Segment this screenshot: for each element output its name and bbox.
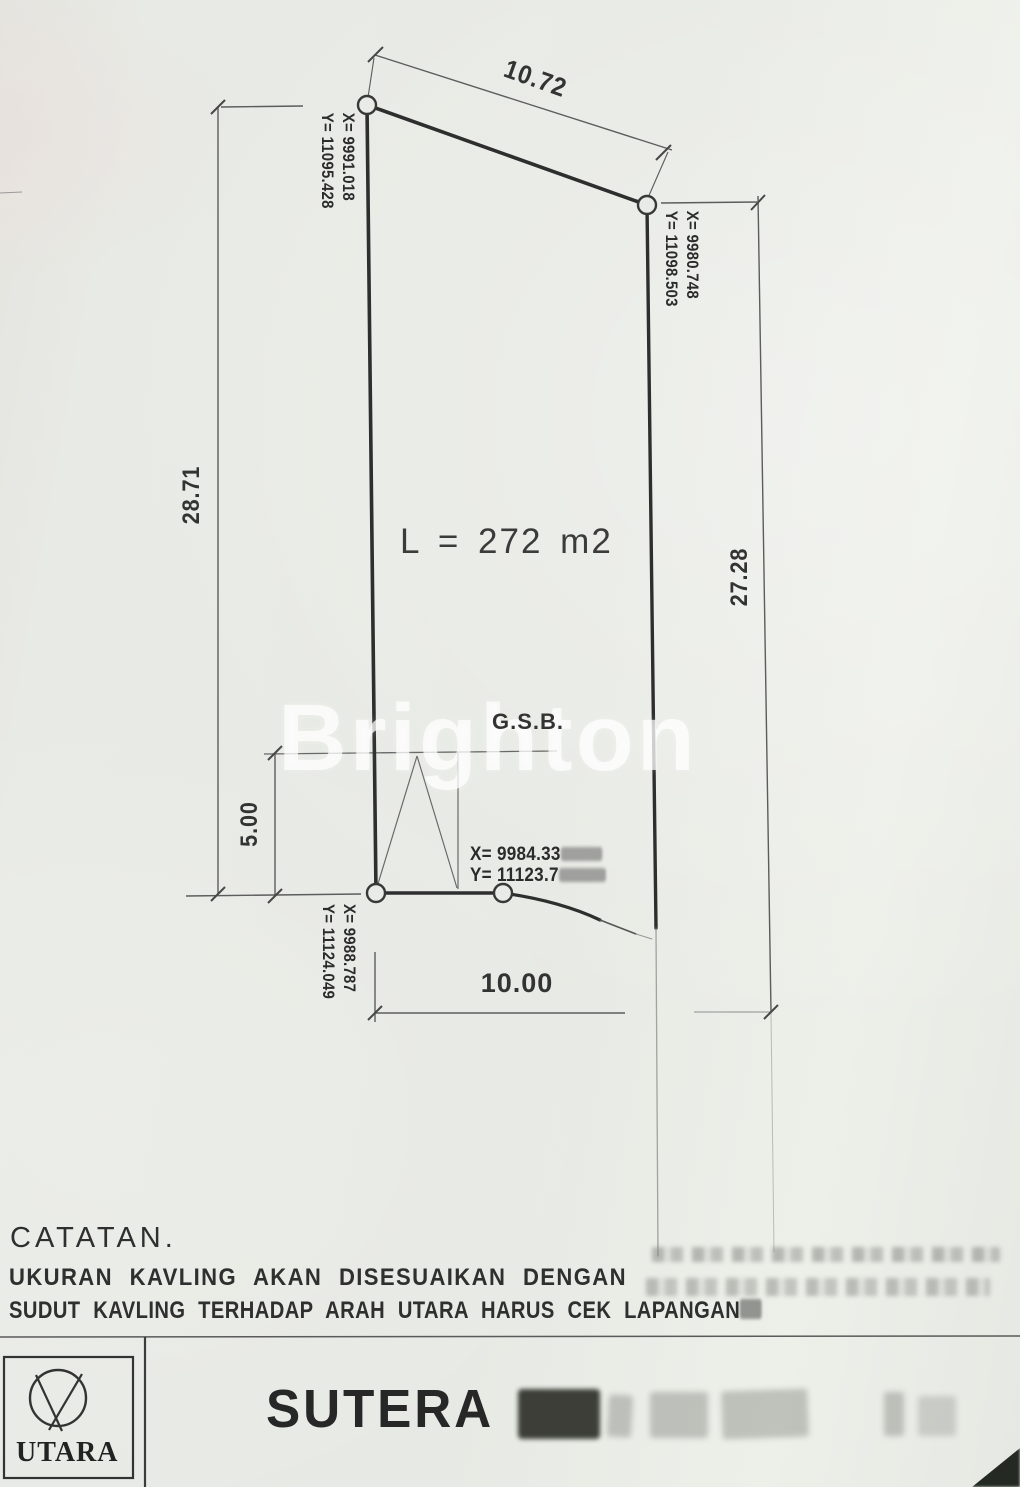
y-value: Y= 11124.049 — [318, 904, 339, 1022]
dimension-lines — [0, 55, 774, 1252]
y-value: Y= 11123.7 — [470, 865, 559, 886]
smudged-text — [884, 1392, 904, 1436]
smudged-text — [607, 1394, 633, 1437]
area-label: L = 272 m2 — [400, 522, 613, 562]
dimension-label-right: 27.28 — [726, 537, 756, 618]
notes-line-2: SUDUT KAVLING TERHADAP ARAH UTARA HARUS … — [9, 1297, 762, 1325]
x-value: X= 9984.33 — [470, 844, 561, 865]
y-value: Y= 11095.428 — [317, 113, 338, 227]
survey-drawing-page: Brighton 10.72 28.71 27.28 5.00 10.00 L … — [0, 0, 1020, 1487]
illegible-digits — [561, 847, 602, 861]
dimension-label-gsb-offset: 5.00 — [236, 788, 266, 860]
watermark-text: Brighton — [278, 691, 698, 786]
dimension-label-left: 28.71 — [178, 455, 208, 536]
drawing-scene: Brighton 10.72 28.71 27.28 5.00 10.00 L … — [0, 0, 1020, 1487]
coordinate-label-top-left: X= 9991.018 Y= 11095.428 — [315, 113, 359, 227]
smudged-text — [721, 1389, 809, 1440]
notes-line-1: UKURAN KAVLING AKAN DISESUAIKAN DENGAN — [9, 1264, 627, 1292]
dimension-label-bottom: 10.00 — [447, 968, 587, 1002]
smudged-stamp — [518, 1389, 600, 1439]
coordinate-label-top-right: X= 9980.748 Y= 11098.503 — [659, 211, 703, 325]
x-value: X= 9980.748 — [682, 211, 703, 325]
project-title: SUTERA — [266, 1378, 494, 1440]
north-arrow-icon — [30, 1370, 86, 1431]
north-label: UTARA — [16, 1437, 118, 1469]
title-block-frame — [0, 1336, 1020, 1487]
bleed-through-text — [646, 1278, 990, 1296]
y-value: Y= 11098.503 — [661, 211, 682, 325]
coordinate-label-bottom-left: X= 9988.787 Y= 11124.049 — [314, 904, 360, 1022]
x-value: X= 9988.787 — [339, 904, 360, 1022]
smudged-text — [650, 1392, 708, 1438]
notes-heading: CATATAN. — [10, 1222, 177, 1255]
illegible-digits — [559, 868, 606, 882]
illegible-mark — [740, 1299, 762, 1319]
smudged-text — [918, 1396, 956, 1436]
plot-boundary — [367, 105, 658, 1256]
bleed-through-text — [652, 1247, 1000, 1262]
coordinate-label-bottom-mid: X= 9984.33 Y= 11123.7 — [470, 844, 606, 886]
x-value: X= 9991.018 — [338, 113, 359, 227]
gsb-label: G.S.B. — [492, 709, 564, 735]
